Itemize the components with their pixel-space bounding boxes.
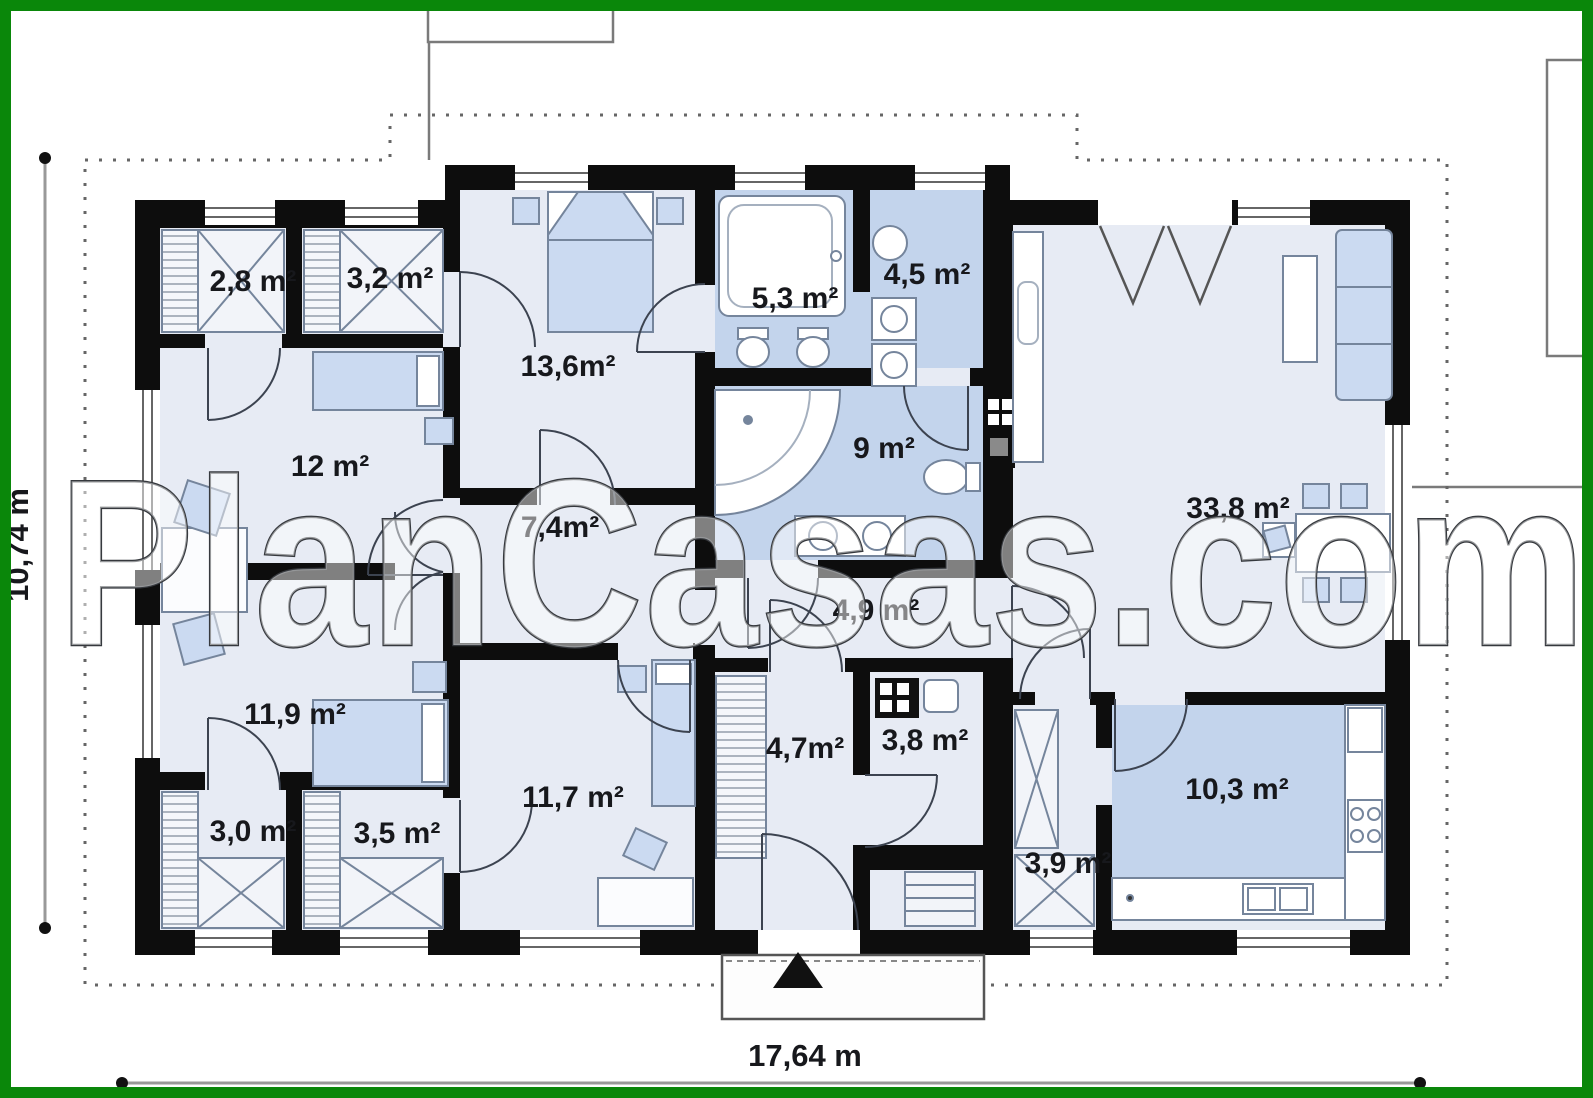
room-label: 5,3 m² xyxy=(752,282,839,315)
stove-icon xyxy=(1348,800,1382,852)
room-label: 3,8 m² xyxy=(882,724,969,757)
entrance-porch xyxy=(722,952,984,1019)
room-label: 11,9 m² xyxy=(244,698,346,731)
wardrobe-icon xyxy=(716,676,766,858)
door-gap xyxy=(443,798,460,873)
door-gap xyxy=(695,285,715,352)
room-label: 4,5 m² xyxy=(884,258,971,291)
room-label: 3,5 m² xyxy=(354,817,441,850)
toilet-icon xyxy=(737,328,769,367)
watermark: PlanCasas.com xyxy=(58,431,1588,696)
room-label: 2,8 m² xyxy=(210,265,297,298)
room-label: 11,7 m² xyxy=(522,781,624,814)
door-gap xyxy=(205,772,280,790)
sink-icon xyxy=(873,226,907,260)
door-gap xyxy=(1096,748,1112,805)
door-gap xyxy=(205,334,282,348)
window xyxy=(515,165,588,190)
dimension-label-horizontal: 17,64 m xyxy=(748,1038,862,1073)
room-label: 13,6m² xyxy=(520,350,615,383)
steps-icon xyxy=(905,872,975,926)
room-label: 3,9 m² xyxy=(1025,847,1112,880)
sideboard-icon xyxy=(1013,232,1043,462)
window xyxy=(1238,200,1310,225)
window xyxy=(520,930,640,955)
window xyxy=(1030,930,1093,955)
door-gap xyxy=(853,775,870,845)
floor-plan-page: 2,8 m² 3,2 m² 13,6m² 5,3 m² 4,5 m² 12 m²… xyxy=(0,0,1593,1098)
window xyxy=(345,200,418,225)
room-label: 10,3 m² xyxy=(1185,773,1288,806)
window xyxy=(915,165,985,190)
wall-notch-left xyxy=(135,165,445,200)
room-label: 3,2 m² xyxy=(347,262,434,295)
entrance-opening xyxy=(758,930,860,955)
door-gap xyxy=(853,292,870,368)
bidet-icon xyxy=(797,328,829,367)
door-gap xyxy=(443,272,460,347)
wall-notch-right xyxy=(1010,165,1410,200)
window xyxy=(735,165,805,190)
window xyxy=(195,930,272,955)
door-gap xyxy=(908,368,970,386)
sofa-icon xyxy=(1336,230,1392,400)
window xyxy=(1237,930,1350,955)
window xyxy=(340,930,428,955)
room-label: 4,7m² xyxy=(766,732,844,765)
window xyxy=(205,200,275,225)
shelf-unit-icon xyxy=(1283,256,1317,362)
room-label: 3,0 m² xyxy=(210,815,297,848)
floor-plan-canvas: 2,8 m² 3,2 m² 13,6m² 5,3 m² 4,5 m² 12 m²… xyxy=(0,0,1593,1098)
